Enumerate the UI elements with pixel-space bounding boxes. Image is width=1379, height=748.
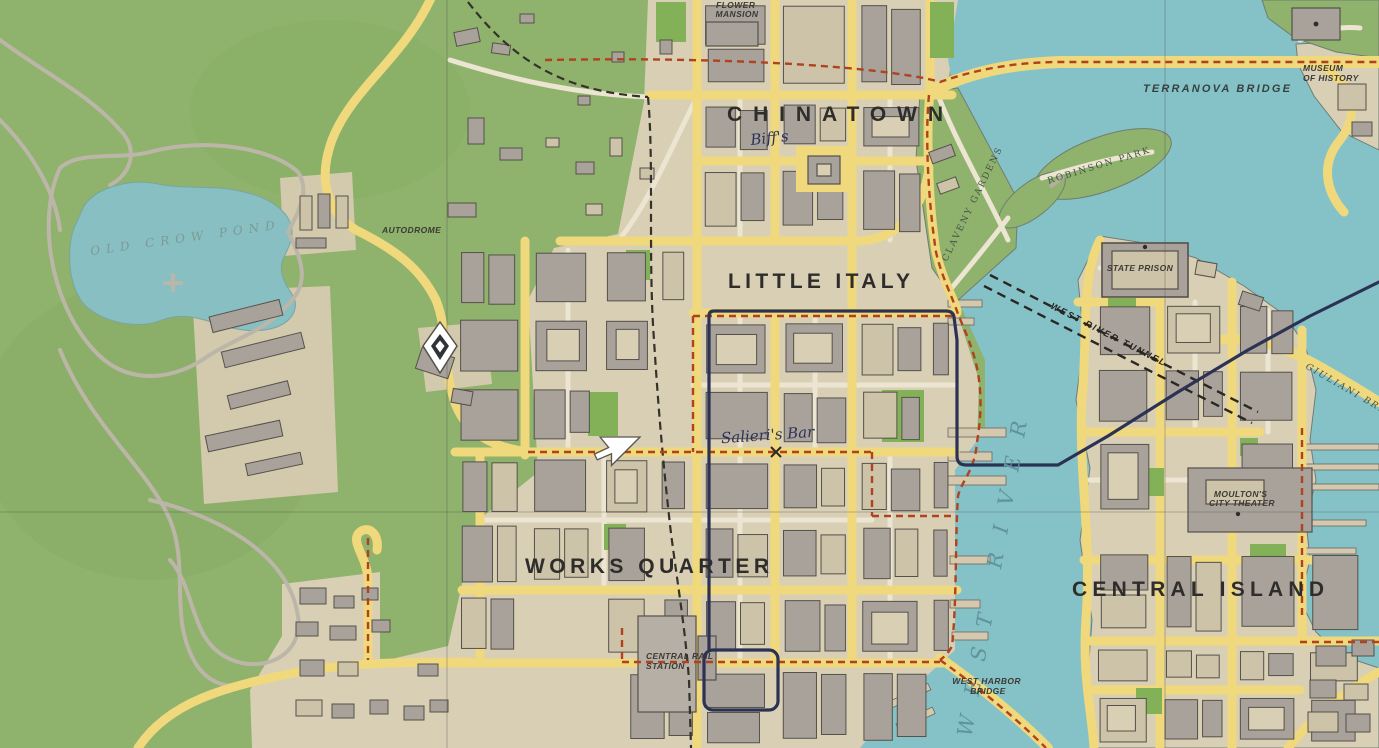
building [430, 700, 448, 712]
building [864, 392, 897, 438]
building [660, 40, 672, 54]
building [1108, 453, 1138, 500]
poi-label-flower-mansion: FLOWER MANSION [716, 0, 759, 19]
building [1269, 654, 1293, 676]
park-shade [190, 20, 470, 200]
building [500, 148, 522, 160]
building [1346, 714, 1370, 732]
building [1195, 260, 1217, 277]
building [898, 328, 921, 371]
building [1166, 651, 1191, 677]
building [1165, 700, 1198, 739]
building [362, 588, 378, 600]
bridge-label-terranova: TERRANOVA BRIDGE [1143, 83, 1293, 95]
building [330, 626, 356, 640]
building [463, 462, 487, 512]
building [1316, 646, 1346, 666]
building [817, 398, 846, 443]
district-label-chinatown: CHINATOWN [727, 103, 949, 126]
poi-label-moultons-theater: MOULTON'S CITY THEATER [1209, 489, 1275, 508]
building [864, 528, 890, 578]
building [570, 391, 589, 432]
building [708, 712, 760, 742]
building [370, 700, 388, 714]
building [864, 674, 892, 741]
building [708, 49, 764, 81]
district-label-little-italy: LITTLE ITALY [728, 270, 916, 293]
building [418, 664, 438, 676]
building [497, 526, 516, 582]
building [1352, 122, 1372, 136]
building [535, 460, 586, 511]
building [1107, 705, 1135, 731]
building [576, 162, 594, 174]
building [1249, 707, 1284, 730]
building [338, 662, 358, 676]
building [716, 334, 756, 364]
building [1308, 712, 1338, 732]
building [934, 600, 948, 650]
building [783, 530, 816, 575]
building [740, 603, 764, 645]
building [864, 171, 895, 229]
building [784, 465, 816, 508]
building [615, 470, 637, 503]
building [902, 397, 919, 439]
building [663, 252, 684, 299]
building [1344, 684, 1368, 700]
building [1196, 655, 1219, 678]
building [468, 118, 484, 144]
building [662, 462, 684, 509]
building [821, 674, 845, 734]
building [578, 96, 590, 105]
building [300, 588, 326, 604]
building [821, 535, 845, 574]
building [491, 599, 514, 649]
building [296, 700, 322, 716]
building [1203, 700, 1222, 736]
building [492, 463, 517, 512]
building [462, 253, 484, 303]
building [933, 323, 948, 375]
building [1176, 314, 1210, 343]
building [1204, 372, 1223, 417]
building [794, 333, 832, 363]
building [372, 620, 390, 632]
building [934, 530, 947, 576]
flower-mansion-building [706, 22, 758, 46]
building [616, 329, 639, 359]
building [706, 464, 767, 509]
building [462, 526, 492, 582]
building [862, 324, 893, 375]
building [741, 173, 764, 221]
building [296, 622, 318, 636]
building [404, 706, 424, 720]
building [461, 320, 518, 371]
building [1240, 372, 1291, 420]
building [897, 674, 926, 736]
building [872, 612, 908, 644]
building [489, 255, 515, 304]
district-label-works-quarter: WORKS QUARTER [525, 555, 775, 578]
building [1310, 680, 1336, 698]
building [536, 253, 585, 301]
building [448, 203, 476, 217]
map-viewport[interactable]: CHINATOWN LITTLE ITALY WORKS QUARTER CEN… [0, 0, 1379, 748]
building [334, 596, 354, 608]
building [546, 138, 559, 147]
building [318, 194, 330, 228]
poi-label-autodrome: AUTODROME [381, 225, 441, 235]
building [862, 463, 886, 509]
building [1338, 84, 1366, 110]
building [705, 173, 736, 227]
building [1098, 650, 1147, 681]
building [586, 204, 602, 215]
building [300, 196, 312, 230]
building [451, 388, 473, 405]
building [336, 196, 348, 228]
building [332, 704, 354, 718]
building [607, 253, 645, 301]
building [825, 605, 845, 651]
building [822, 468, 845, 506]
building [783, 673, 816, 739]
building [610, 138, 622, 156]
building [300, 660, 324, 676]
city-map[interactable]: CHINATOWN LITTLE ITALY WORKS QUARTER CEN… [0, 0, 1379, 748]
building [895, 529, 918, 576]
building [1240, 652, 1263, 680]
building [934, 462, 948, 507]
building [1099, 370, 1146, 421]
poi-label-state-prison: STATE PRISON [1107, 263, 1174, 273]
building [891, 469, 920, 511]
building [534, 390, 565, 439]
building [785, 601, 820, 652]
building [296, 238, 326, 248]
district-label-central-island: CENTRAL ISLAND [1072, 578, 1330, 601]
building [520, 14, 534, 23]
building [783, 6, 844, 83]
building [547, 329, 579, 361]
building [462, 598, 487, 648]
building [900, 174, 920, 232]
